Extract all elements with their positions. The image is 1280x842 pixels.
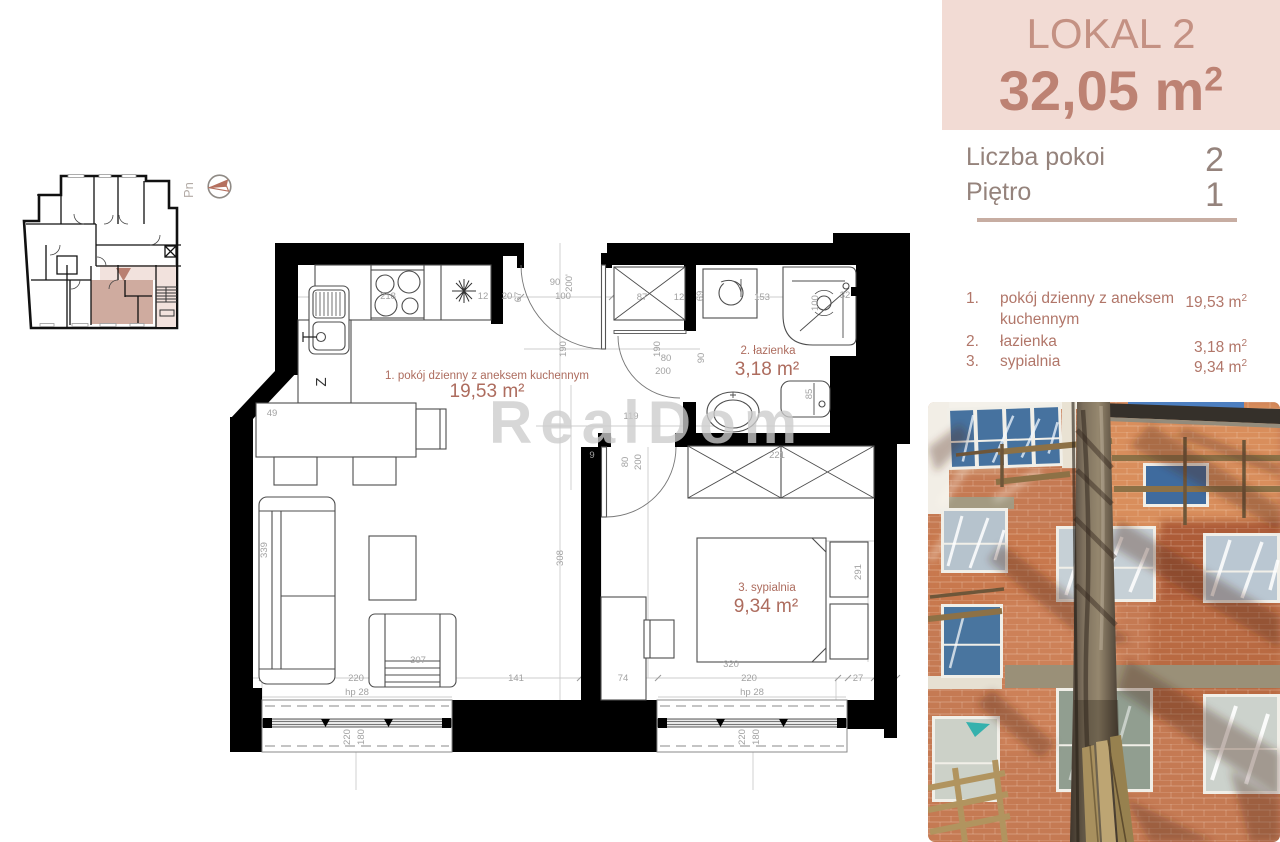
svg-text:12: 12 [674, 292, 685, 303]
svg-text:141: 141 [508, 673, 524, 684]
svg-text:87: 87 [637, 292, 648, 303]
svg-text:27: 27 [853, 673, 864, 684]
svg-text:153: 153 [754, 292, 770, 303]
svg-text:220: 220 [342, 729, 353, 745]
svg-text:Z: Z [313, 377, 330, 386]
svg-text:190: 190 [558, 341, 569, 357]
svg-text:12: 12 [478, 291, 489, 302]
svg-text:85: 85 [804, 389, 815, 400]
svg-text:100: 100 [810, 295, 821, 311]
svg-text:90: 90 [550, 277, 561, 288]
svg-text:220: 220 [348, 673, 364, 684]
svg-text:2. łazienka: 2. łazienka [741, 345, 797, 357]
svg-text:218: 218 [380, 291, 396, 302]
svg-text:80: 80 [661, 353, 672, 364]
svg-text:308: 308 [555, 550, 566, 566]
svg-text:Pn: Pn [181, 182, 196, 198]
svg-text:200: 200 [633, 454, 644, 470]
svg-text:220: 220 [737, 729, 748, 745]
svg-text:220: 220 [741, 673, 757, 684]
svg-text:69: 69 [695, 291, 706, 302]
svg-text:49: 49 [267, 408, 278, 419]
svg-text:90: 90 [696, 353, 707, 364]
svg-text:320: 320 [723, 659, 739, 670]
svg-text:hp 28: hp 28 [740, 687, 764, 698]
svg-text:307: 307 [410, 655, 426, 666]
svg-text:200: 200 [655, 366, 671, 377]
svg-text:200': 200' [564, 274, 575, 292]
svg-text:339: 339 [259, 542, 270, 558]
svg-text:180: 180 [751, 729, 762, 745]
svg-text:74: 74 [618, 673, 629, 684]
svg-text:hp 28: hp 28 [345, 687, 369, 698]
svg-text:67: 67 [513, 292, 524, 303]
svg-text:RealDom: RealDom [489, 389, 805, 456]
svg-text:3. sypialnia: 3. sypialnia [738, 582, 796, 594]
svg-text:80: 80 [620, 457, 631, 468]
svg-text:3,18 m²: 3,18 m² [735, 359, 799, 380]
svg-text:9,34 m²: 9,34 m² [734, 596, 798, 617]
svg-text:180: 180 [356, 729, 367, 745]
svg-text:291: 291 [853, 564, 864, 580]
svg-text:32: 32 [840, 290, 851, 301]
svg-text:20: 20 [502, 291, 513, 302]
